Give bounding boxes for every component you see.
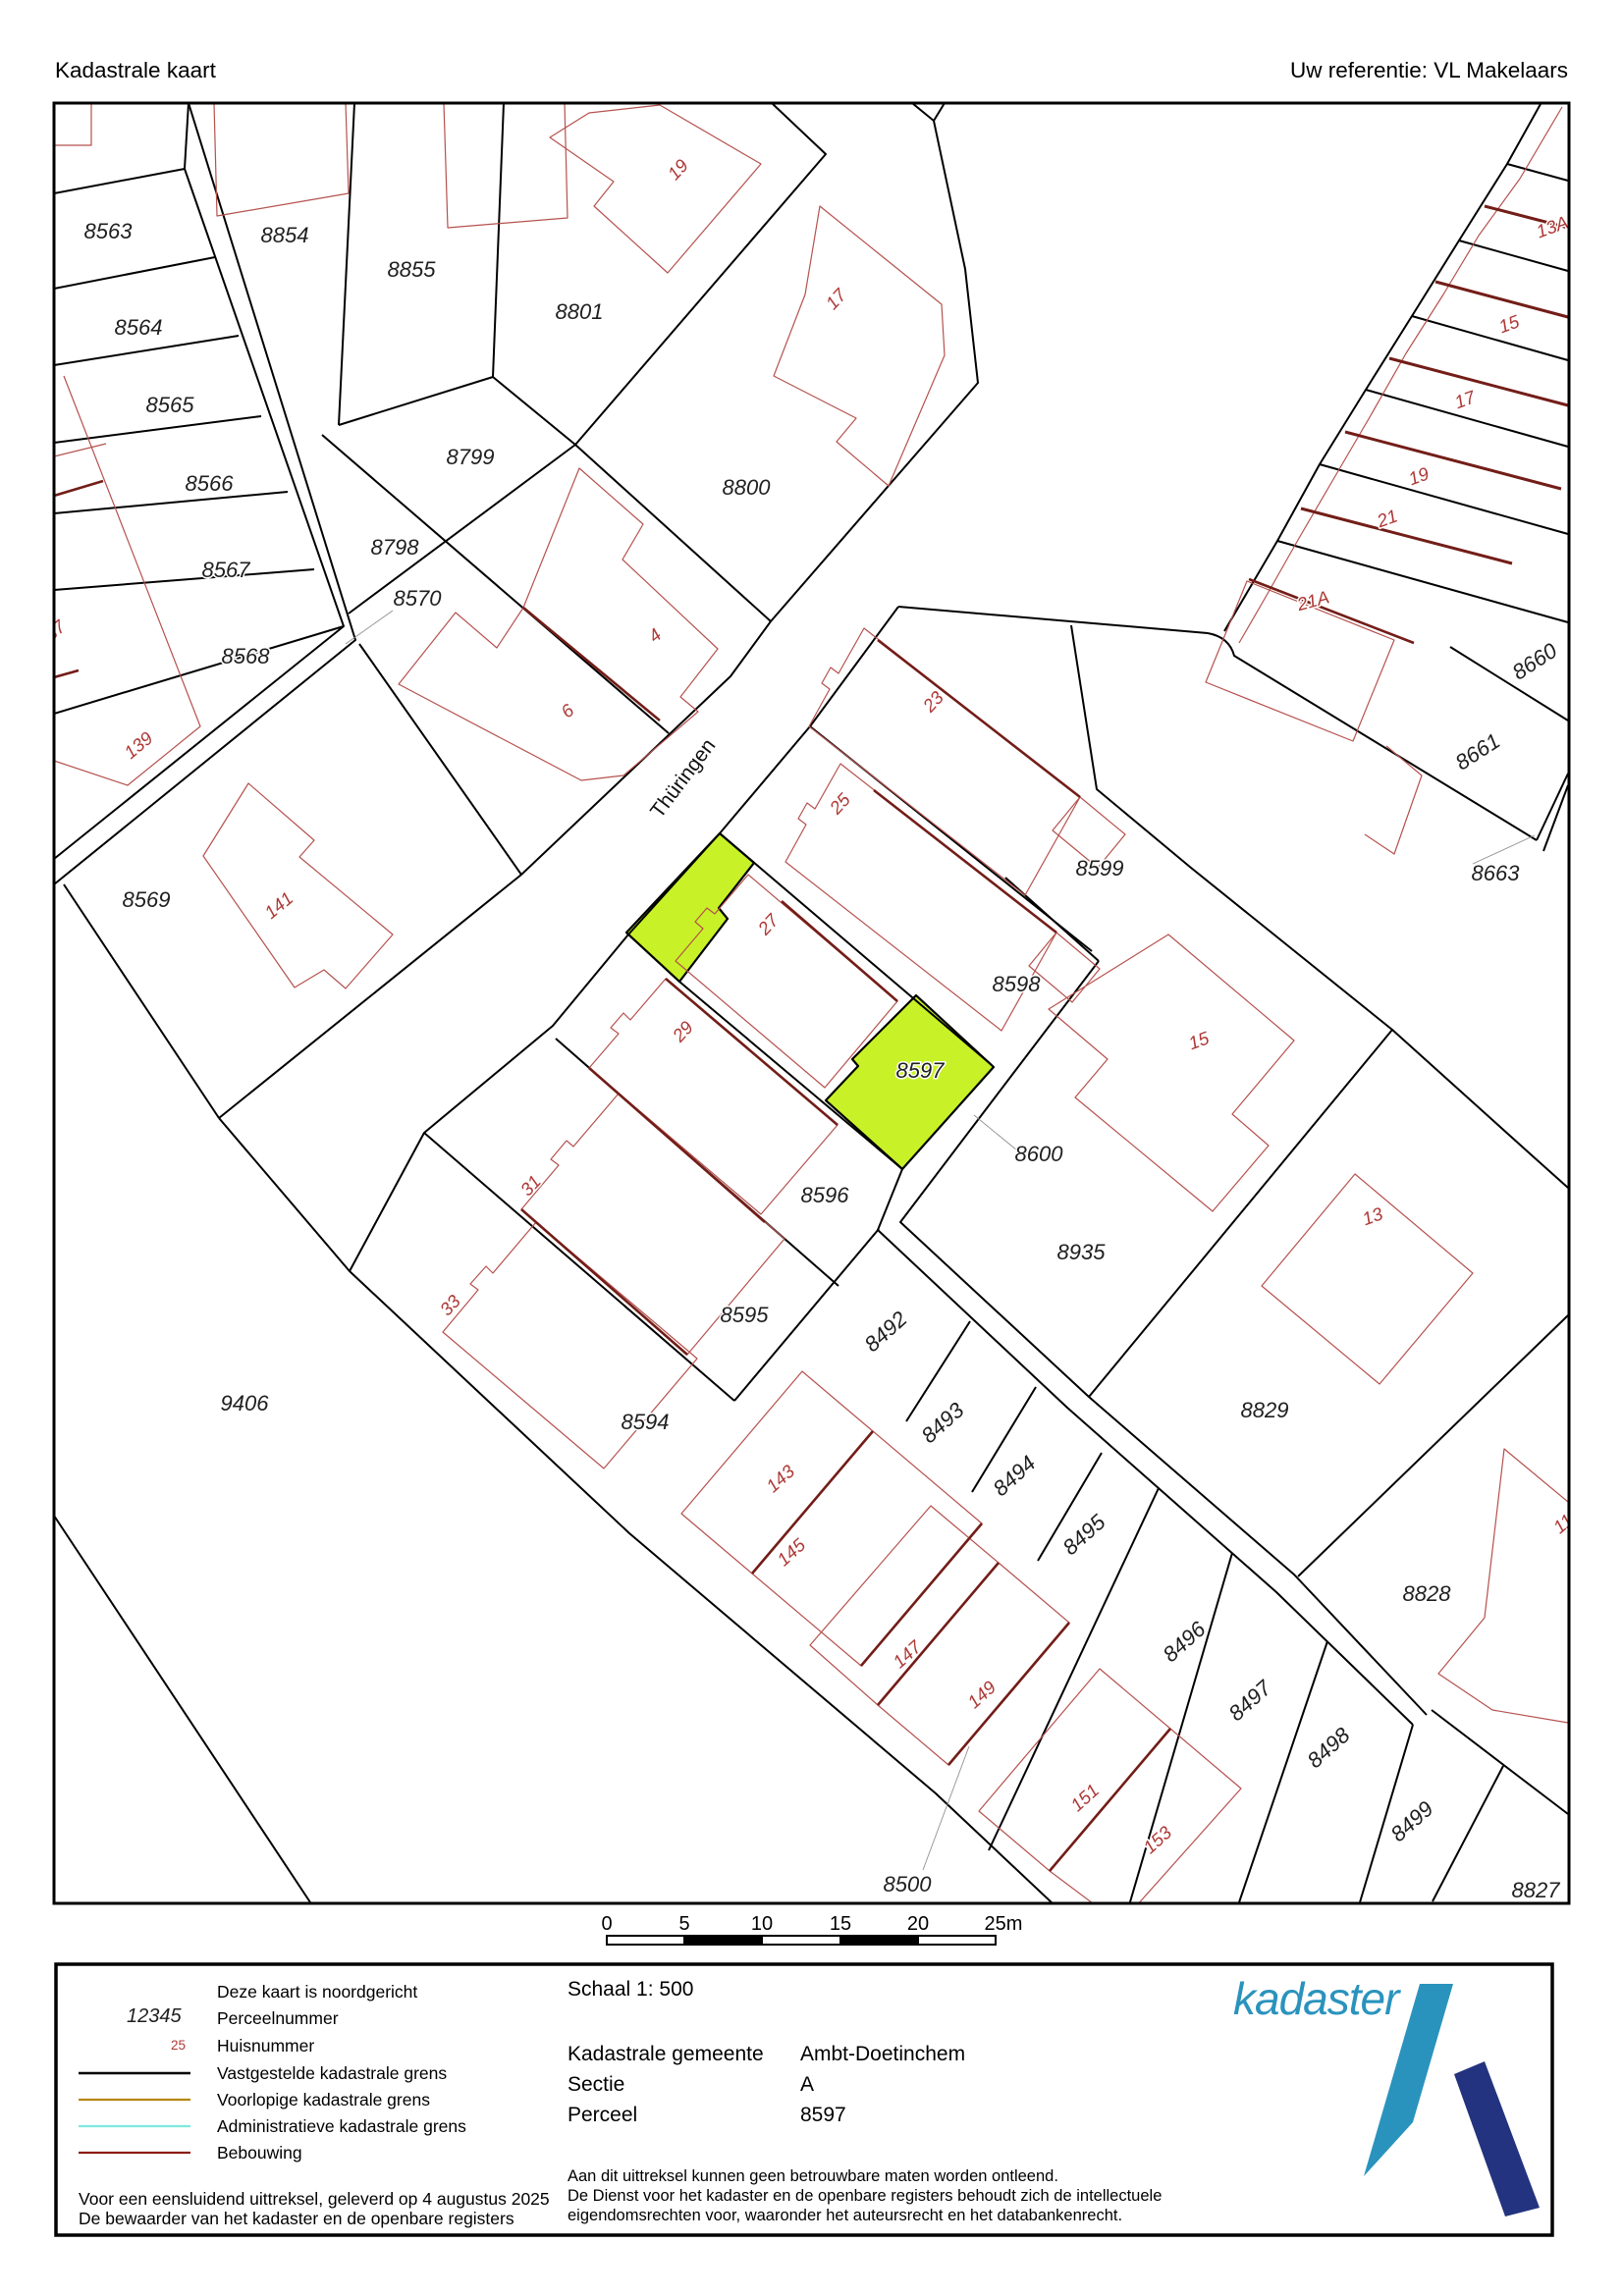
svg-text:kadaster: kadaster [1233,1973,1401,2024]
svg-text:Administratieve kadastrale gre: Administratieve kadastrale grens [217,2116,466,2136]
svg-text:8595: 8595 [721,1303,770,1327]
svg-text:De Dienst voor het kadaster en: De Dienst voor het kadaster en de openba… [568,2187,1162,2205]
svg-text:8594: 8594 [622,1410,670,1434]
svg-text:Aan dit uittreksel kunnen geen: Aan dit uittreksel kunnen geen betrouwba… [568,2167,1058,2185]
svg-text:8799: 8799 [447,445,495,469]
svg-text:A: A [800,2073,814,2096]
svg-text:8570: 8570 [394,586,443,611]
svg-text:8800: 8800 [723,475,772,500]
svg-text:8600: 8600 [1015,1142,1064,1166]
svg-text:Bebouwing: Bebouwing [217,2143,302,2163]
svg-text:De bewaarder van het kadaster: De bewaarder van het kadaster en de open… [79,2209,514,2228]
svg-text:Vastgestelde kadastrale grens: Vastgestelde kadastrale grens [217,2063,447,2083]
svg-text:8565: 8565 [146,393,195,417]
svg-text:8855: 8855 [388,257,437,282]
svg-text:Voorlopige kadastrale grens: Voorlopige kadastrale grens [217,2090,430,2109]
svg-text:Kadastrale kaart: Kadastrale kaart [55,58,217,82]
svg-text:8597: 8597 [800,2104,846,2126]
svg-text:8598: 8598 [993,972,1042,996]
svg-text:8596: 8596 [801,1183,850,1207]
svg-text:Deze kaart is noordgericht: Deze kaart is noordgericht [217,1982,417,2002]
svg-text:8564: 8564 [115,315,163,340]
svg-text:Huisnummer: Huisnummer [217,2036,314,2056]
svg-text:25: 25 [171,2038,186,2053]
svg-text:Sectie: Sectie [568,2073,624,2096]
svg-text:8500: 8500 [884,1872,933,1896]
svg-text:8854: 8854 [261,223,309,247]
svg-text:8569: 8569 [123,887,171,912]
svg-text:8568: 8568 [222,644,271,668]
svg-text:0: 0 [601,1913,612,1935]
svg-text:Kadastrale gemeente: Kadastrale gemeente [568,2043,764,2065]
svg-text:Uw referentie: VL Makelaars: Uw referentie: VL Makelaars [1290,58,1568,82]
svg-text:8798: 8798 [371,535,420,560]
svg-text:8566: 8566 [186,471,235,496]
svg-text:20: 20 [907,1913,929,1935]
svg-text:25m: 25m [985,1913,1023,1935]
svg-text:8829: 8829 [1241,1398,1289,1422]
svg-text:12345: 12345 [127,2005,182,2027]
svg-text:8599: 8599 [1076,856,1124,881]
svg-text:9406: 9406 [221,1391,270,1415]
svg-text:Schaal 1: 500: Schaal 1: 500 [568,1978,693,2001]
svg-text:eigendomsrechten voor, waarond: eigendomsrechten voor, waaronder het aut… [568,2207,1122,2224]
svg-text:Voor een eensluidend uittrekse: Voor een eensluidend uittreksel, gelever… [79,2189,550,2209]
svg-text:8828: 8828 [1403,1581,1452,1606]
svg-text:Perceel: Perceel [568,2104,637,2126]
svg-text:Ambt-Doetinchem: Ambt-Doetinchem [800,2043,965,2065]
svg-text:10: 10 [751,1913,773,1935]
svg-text:8801: 8801 [556,299,604,324]
svg-text:5: 5 [678,1913,689,1935]
svg-text:8567: 8567 [202,558,251,582]
svg-text:8663: 8663 [1472,861,1521,885]
svg-text:8597: 8597 [896,1058,946,1083]
svg-text:8563: 8563 [84,219,134,243]
svg-text:Perceelnummer: Perceelnummer [217,2008,339,2028]
svg-text:8827: 8827 [1512,1878,1561,1902]
svg-text:8935: 8935 [1057,1240,1107,1264]
svg-text:15: 15 [830,1913,851,1935]
